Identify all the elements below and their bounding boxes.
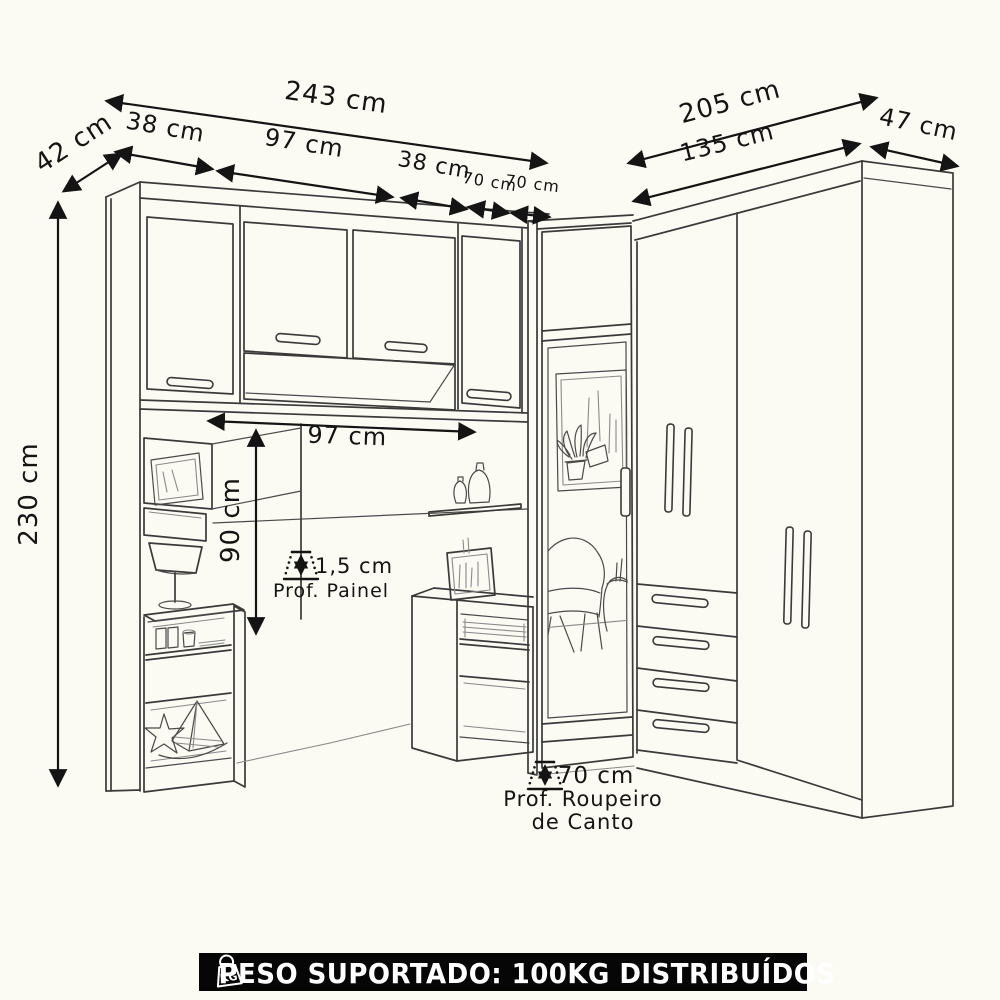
corner-depth-caption-1: Prof. Roupeiro [503,787,662,811]
right-top-edge [633,161,862,221]
corner-depth-value: 70 cm [558,763,635,789]
reflected-art-frame [556,370,628,491]
wall-shelf-vases [429,463,521,516]
furniture-dimension-diagram: 243 cm 42 cm 230 cm 38 cm 97 cm 38 cm 70… [0,0,1000,1000]
large-vase [468,470,490,503]
nightstand [412,538,533,761]
diagram-canvas: 243 cm 42 cm 230 cm 38 cm 97 cm 38 cm 70… [0,0,1000,1000]
panel-depth-value: 1,5 cm [315,554,393,578]
dim-label-side-depth: 42 cm [29,107,117,179]
floor-line [237,724,410,763]
dimension-annotations: 243 cm 42 cm 230 cm 38 cm 97 cm 38 cm 70… [14,74,961,834]
door-handle [467,389,511,400]
dim-arrow-left-door [116,152,212,169]
drawer-handle [653,678,710,691]
reflected-plant-pot [604,559,633,631]
open-niche [244,353,455,410]
dim-label-height: 230 cm [14,442,44,546]
mirror-reflection [538,370,634,653]
door-handle [385,341,427,352]
upper-left-door [147,217,233,394]
door-handle [167,377,213,389]
panel-depth-caption: Prof. Painel [273,580,389,602]
drawer-handle [653,636,710,649]
reflected-floor-line [542,620,631,628]
door-handle [276,333,320,344]
dim-label-niche-height: 90 cm [216,477,246,563]
mirror-frame [548,342,627,718]
left-wall-unit [106,182,549,792]
top-front-edge [140,198,528,228]
dim-label-right-door: 38 cm [396,147,473,184]
corner-depth-caption-2: de Canto [532,810,635,834]
wardrobe-drawers [637,584,737,763]
drawer-bottom [460,676,529,682]
small-vase [454,481,466,503]
folded-towels [463,619,526,641]
dim-label-niche-width: 97 cm [307,421,388,452]
drawer-handle [652,594,709,607]
picture-frame [151,453,203,505]
right-wardrobe [633,161,953,818]
shelf-decor-books [156,627,225,649]
upper-center-doors [244,222,455,365]
dim-label-right-side: 47 cm [877,102,961,146]
lower-cabinet [144,604,245,792]
weight-capacity-banner: KG PESO SUPORTADO: 100KG DISTRIBUÍDOS [199,953,835,991]
dim-label-center-width: 97 cm [263,123,346,163]
banner-text: PESO SUPORTADO: 100KG DISTRIBUÍDOS [219,957,836,990]
drawer-handle [653,719,710,732]
mirror-door-handle [621,468,630,516]
dim-arrow-center-width [218,171,392,197]
upper-right-door [462,236,520,408]
dim-label-total-width: 243 cm [283,76,390,120]
corner-wardrobe [528,215,634,775]
table-lamp [149,543,202,609]
